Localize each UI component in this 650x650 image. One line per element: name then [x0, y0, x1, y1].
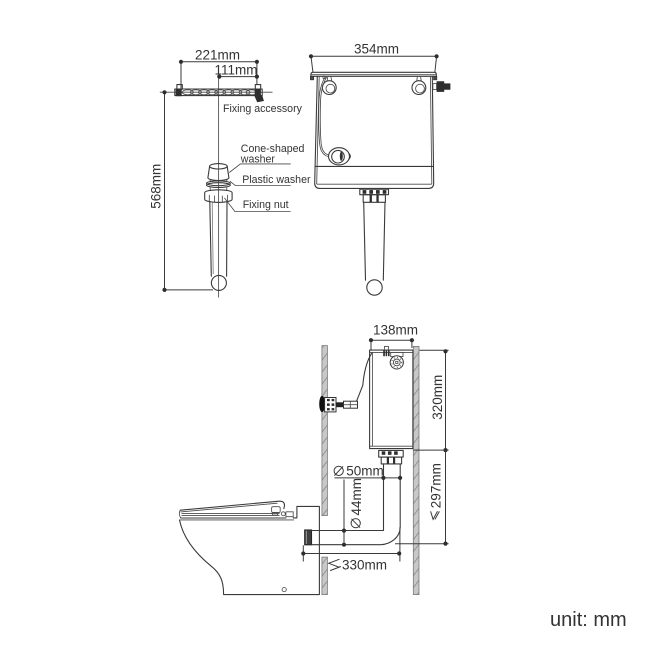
- svg-text:138mm: 138mm: [373, 323, 418, 338]
- svg-text:unit: mm: unit: mm: [550, 609, 627, 631]
- svg-text:111mm: 111mm: [214, 62, 257, 77]
- svg-text:50mm: 50mm: [346, 463, 384, 478]
- svg-text:44mm: 44mm: [349, 478, 364, 516]
- svg-text:568mm: 568mm: [149, 164, 164, 209]
- svg-text:320mm: 320mm: [430, 375, 445, 420]
- svg-text:Fixing nut: Fixing nut: [243, 199, 289, 211]
- svg-text:Fixing accessory: Fixing accessory: [223, 103, 303, 115]
- svg-text:221mm: 221mm: [195, 48, 240, 63]
- svg-text:354mm: 354mm: [354, 42, 399, 57]
- svg-text:297mm: 297mm: [429, 463, 444, 508]
- svg-text:330mm: 330mm: [342, 557, 387, 572]
- svg-text:Plastic washer: Plastic washer: [242, 174, 311, 186]
